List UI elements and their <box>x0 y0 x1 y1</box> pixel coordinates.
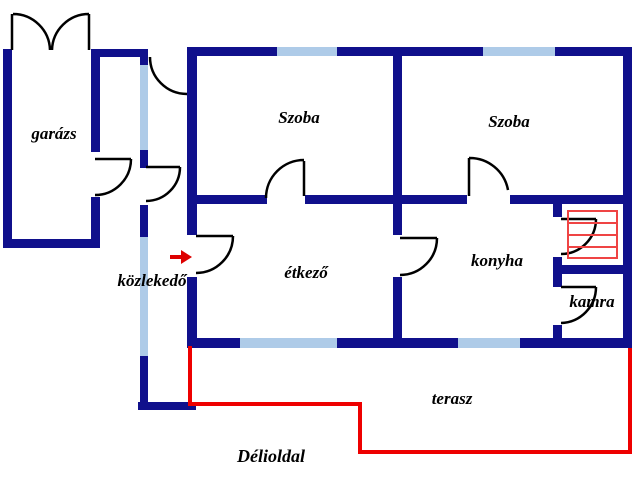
wall-garage-bottom <box>3 239 100 248</box>
terrace-boundary <box>190 346 630 452</box>
wall-mid-horiz-3 <box>402 195 467 204</box>
stairs-treads <box>568 223 617 247</box>
wall-mid-vert-lower <box>393 277 402 348</box>
floor-plan-svg: garázs Szoba Szoba közlekedő étkező kony… <box>0 0 640 480</box>
label-room2: Szoba <box>488 112 530 131</box>
dining-entry-door-icon <box>196 236 233 273</box>
wall-top-2 <box>337 47 483 56</box>
wall-bottom-1 <box>187 338 240 348</box>
window-room1-top <box>277 47 337 56</box>
room2-door-icon <box>469 158 508 196</box>
label-south-side: Délioldal <box>236 446 305 466</box>
wall-bottom-3 <box>520 338 632 348</box>
entrance-arrow-icon <box>170 250 192 264</box>
wall-kitchen-right-a <box>553 195 562 217</box>
window-hallway-lower <box>140 237 148 356</box>
wall-garage-left <box>3 49 12 248</box>
window-kitchen-bottom <box>458 338 520 348</box>
wall-left-upper <box>187 47 197 235</box>
garage-side-door-icon <box>95 159 131 195</box>
label-dining: étkező <box>284 263 329 282</box>
wall-top-3 <box>555 47 632 56</box>
wall-kitchen-right-c <box>553 325 562 348</box>
window-room2-top <box>483 47 555 56</box>
label-hallway: közlekedő <box>118 271 188 290</box>
wall-hallway-stub <box>140 55 148 65</box>
hallway-entry-door-icon <box>150 57 187 94</box>
garage-double-door-icon <box>12 14 89 50</box>
hallway-side-door-icon <box>146 167 180 201</box>
dining-kitchen-door-icon <box>400 238 437 275</box>
wall-hallway-bottom <box>138 402 196 410</box>
wall-gap-top <box>91 49 148 57</box>
wall-hallway-b <box>140 205 148 237</box>
window-hallway-upper <box>140 65 148 150</box>
wall-hallway-c <box>140 356 148 406</box>
label-room1: Szoba <box>278 108 320 127</box>
entrance-arrow-head <box>181 250 192 264</box>
wall-mid-horiz-2 <box>305 195 397 204</box>
wall-hallway-a <box>140 150 148 168</box>
room-labels: garázs Szoba Szoba közlekedő étkező kony… <box>30 108 615 466</box>
wall-mid-horiz-4 <box>510 195 632 204</box>
walls <box>3 47 632 410</box>
kitchen-stairs-door-icon <box>561 219 596 254</box>
floor-plan: garázs Szoba Szoba közlekedő étkező kony… <box>0 0 640 480</box>
label-terrace: terasz <box>432 389 473 408</box>
label-pantry: kamra <box>569 292 615 311</box>
wall-mid-horiz-1 <box>187 195 267 204</box>
wall-garage-right-upper <box>91 49 100 152</box>
room1-door-icon <box>266 160 304 198</box>
terrace-outline <box>190 346 630 452</box>
wall-garage-right-lower <box>91 197 100 248</box>
wall-top-1 <box>187 47 277 56</box>
wall-mid-vert-upper <box>393 47 402 235</box>
wall-stairs-pantry-divider <box>553 265 632 274</box>
window-dining-bottom <box>240 338 337 348</box>
label-garage: garázs <box>30 124 77 143</box>
label-kitchen: konyha <box>471 251 523 270</box>
wall-left-lower <box>187 277 197 348</box>
